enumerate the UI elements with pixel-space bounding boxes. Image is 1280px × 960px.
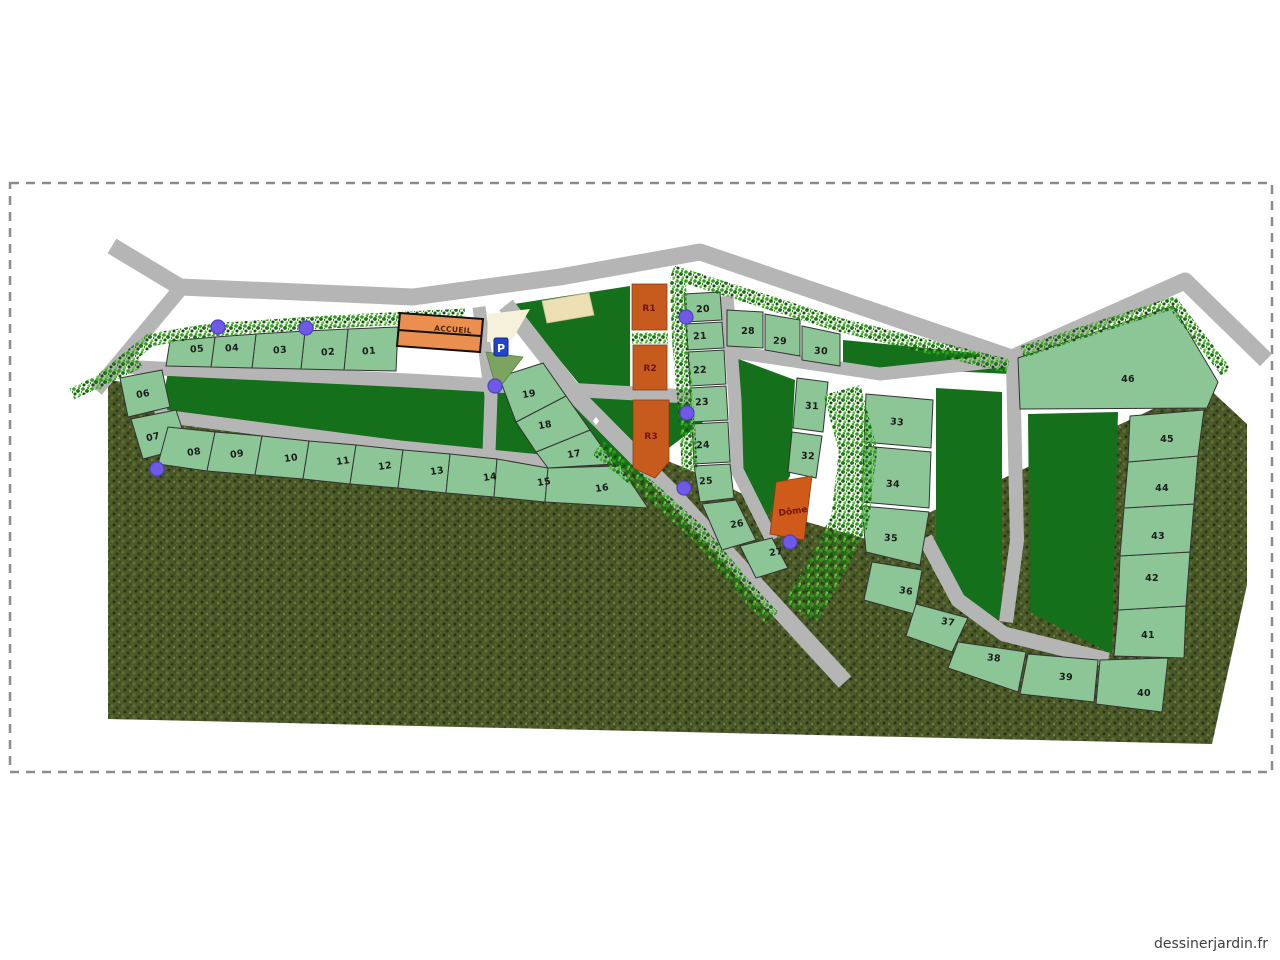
plot-label-29: 29 — [773, 336, 787, 348]
unit-r1-label: R1 — [642, 304, 655, 314]
marker-dot[interactable] — [783, 535, 797, 549]
plot-29[interactable] — [765, 314, 800, 356]
plot-label-45: 45 — [1160, 434, 1174, 445]
plot-label-32: 32 — [801, 451, 815, 463]
plot-label-16: 16 — [594, 482, 609, 495]
plot-label-28: 28 — [741, 326, 755, 337]
plot-label-35: 35 — [884, 533, 898, 545]
marker-dot[interactable] — [211, 320, 225, 334]
plot-label-08: 08 — [186, 446, 201, 459]
marker-dot[interactable] — [680, 406, 694, 420]
marker-dot[interactable] — [677, 481, 691, 495]
plot-label-20: 20 — [696, 304, 710, 316]
plot-label-02: 02 — [321, 347, 336, 359]
plot-label-03: 03 — [273, 345, 288, 357]
plot-label-38: 38 — [986, 652, 1001, 664]
garden-plan-page: 01 02 03 04 05 06 07 08 09 10 11 12 13 1… — [0, 0, 1280, 960]
plot-label-11: 11 — [335, 455, 350, 468]
plot-12[interactable] — [350, 445, 403, 488]
plot-label-13: 13 — [429, 465, 444, 478]
plot-label-39: 39 — [1059, 672, 1073, 684]
plot-label-01: 01 — [362, 346, 377, 358]
watermark: dessinerjardin.fr — [1154, 936, 1268, 952]
garden-plan-canvas: 01 02 03 04 05 06 07 08 09 10 11 12 13 1… — [0, 0, 1280, 960]
lawn-right-c — [1028, 412, 1118, 654]
plot-label-31: 31 — [805, 401, 819, 413]
plot-label-42: 42 — [1145, 573, 1159, 584]
plot-label-41: 41 — [1141, 630, 1155, 641]
plot-label-37: 37 — [940, 616, 955, 629]
plot-label-05: 05 — [190, 344, 205, 356]
plot-label-10: 10 — [283, 452, 298, 465]
plot-label-24: 24 — [696, 440, 710, 452]
marker-dot[interactable] — [150, 462, 164, 476]
plot-label-09: 09 — [229, 448, 244, 461]
plot-label-12: 12 — [377, 460, 392, 473]
marker-dot[interactable] — [679, 310, 693, 324]
plot-label-33: 33 — [890, 416, 905, 428]
plot-label-40: 40 — [1137, 688, 1151, 699]
plot-label-23: 23 — [695, 397, 709, 409]
plot-label-25: 25 — [699, 476, 713, 488]
plot-label-15: 15 — [536, 476, 551, 489]
plot-label-14: 14 — [482, 471, 497, 484]
marker-dot[interactable] — [299, 321, 313, 335]
plot-44[interactable] — [1124, 456, 1198, 508]
plot-label-46: 46 — [1121, 374, 1135, 385]
plot-10[interactable] — [255, 436, 309, 479]
unit-r3-label: R3 — [644, 432, 657, 442]
marker-dot[interactable] — [488, 379, 502, 393]
plot-label-04: 04 — [225, 343, 240, 355]
plot-label-34: 34 — [886, 479, 900, 491]
unit-r2-label: R2 — [643, 364, 656, 374]
plot-label-36: 36 — [898, 585, 913, 598]
parking-label: P — [497, 342, 505, 355]
plot-43[interactable] — [1120, 504, 1194, 556]
plot-label-21: 21 — [693, 331, 707, 343]
plot-label-44: 44 — [1155, 483, 1169, 494]
plot-40[interactable] — [1096, 658, 1168, 712]
plot-label-43: 43 — [1151, 531, 1165, 542]
plot-label-30: 30 — [814, 346, 828, 358]
plot-label-22: 22 — [693, 365, 707, 377]
